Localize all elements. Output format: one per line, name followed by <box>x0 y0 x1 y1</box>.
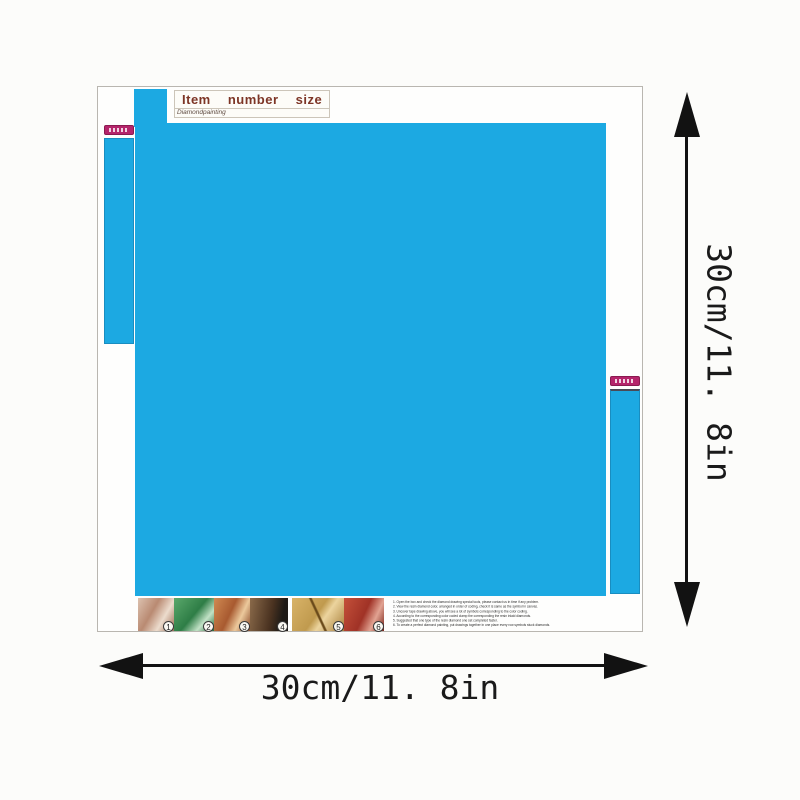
canvas-top-tab <box>134 89 167 127</box>
step-6-photo: 6 <box>344 598 384 631</box>
blue-canvas-area <box>135 123 606 596</box>
step-6-number-badge: 6 <box>373 621 384 632</box>
step-3-number-badge: 3 <box>239 621 250 632</box>
step-4-number-badge: 4 <box>277 621 288 632</box>
width-arrow-right-icon <box>604 653 648 679</box>
product-dimension-image: Item number size Diamondpainting 1 2 3 4 <box>0 0 800 800</box>
brand-tag-left <box>104 125 134 135</box>
canvas-side-strip-left <box>104 138 134 344</box>
brand-tag-right-text <box>615 379 635 383</box>
step-1-photo: 1 <box>138 598 174 631</box>
width-dimension-label: 30cm/11. 8in <box>261 668 499 707</box>
step-3-photo: 3 <box>214 598 250 631</box>
item-label-box: Item number size Diamondpainting <box>174 90 330 118</box>
instruction-text-block: 1. Open the box and check the diamond dr… <box>393 600 641 628</box>
width-arrow-line <box>141 664 605 667</box>
step-5-photo: 5 <box>292 598 344 631</box>
height-dimension-label: 30cm/11. 8in <box>700 243 739 481</box>
step-2-photo: 2 <box>174 598 214 631</box>
brand-tag-right <box>610 376 640 386</box>
instruction-step-photos: 1 2 3 4 5 6 <box>138 598 384 631</box>
instruction-line: 6. To create a perfect diamond painting,… <box>393 623 641 628</box>
height-arrow-up-icon <box>674 92 700 137</box>
height-arrow-down-icon <box>674 582 700 627</box>
step-2-number-badge: 2 <box>203 621 214 632</box>
width-dimension-label-wrap: 30cm/11. 8in <box>160 668 600 707</box>
height-arrow-line <box>685 134 688 586</box>
step-5-number-badge: 5 <box>333 621 344 632</box>
canvas-side-strip-right <box>610 389 640 594</box>
width-arrow-left-icon <box>99 653 143 679</box>
item-label-subtitle: Diamondpainting <box>175 109 329 118</box>
item-label-title: Item number size <box>175 91 329 109</box>
brand-tag-left-text <box>109 128 129 132</box>
step-1-number-badge: 1 <box>163 621 174 632</box>
canvas-sheet: Item number size Diamondpainting 1 2 3 4 <box>97 86 643 632</box>
step-4-photo: 4 <box>250 598 288 631</box>
